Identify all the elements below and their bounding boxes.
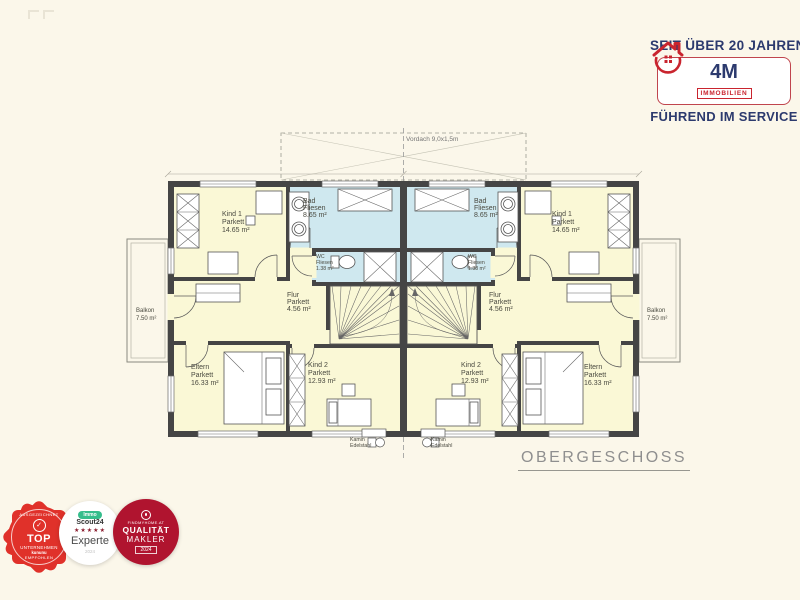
svg-text:Fliesen: Fliesen (474, 205, 497, 212)
right-unit-lines (403, 181, 680, 447)
svg-text:1.38 m²: 1.38 m² (316, 266, 334, 272)
party-wall (400, 181, 407, 437)
badge-arc-top: AUSGEZEICHNET (19, 513, 58, 518)
room-label: Kind 1 (552, 211, 572, 218)
svg-text:Fliesen: Fliesen (303, 205, 326, 212)
room-label: Eltern (584, 364, 602, 371)
svg-text:Parkett: Parkett (287, 299, 309, 306)
room-label: Kind 2 (308, 362, 328, 369)
badge-arc-bottom: EMPFOHLEN (25, 556, 54, 561)
room-label: Flur (287, 292, 300, 299)
room-label: Bad (303, 198, 316, 205)
svg-text:8.65 m²: 8.65 m² (474, 212, 498, 219)
scout24-label: Scout24 (76, 519, 103, 527)
svg-text:Parkett: Parkett (489, 299, 511, 306)
badge-year: 2024 (135, 546, 156, 554)
svg-text:12.93 m²: 12.93 m² (308, 378, 336, 385)
svg-text:Edelstahl: Edelstahl (350, 443, 371, 449)
svg-text:14.65 m²: 14.65 m² (222, 227, 250, 234)
svg-text:Parkett: Parkett (308, 370, 330, 377)
award-badges: AUSGEZEICHNET ✓ TOP UNTERNEHMEN kununu E… (2, 498, 192, 578)
findmyhome-qualitaet-makler-badge: FINDMYHOME.AT QUALITÄT MAKLER 2024 (113, 499, 179, 565)
room-label: Kind 1 (222, 211, 242, 218)
house-icon (650, 38, 686, 74)
logo-subtext: IMMOBILIEN (697, 88, 752, 99)
svg-text:4.56 m²: 4.56 m² (287, 306, 311, 313)
check-icon: ✓ (33, 519, 46, 532)
star-rating-icon: ★★★★★ (74, 528, 106, 535)
room-label: Balkon (647, 308, 665, 314)
listing-floorplan-page: Vordach 9,0x1,5m Kind 1 Parkett 14.65 m²… (0, 0, 800, 600)
logo-text: 4M (697, 62, 752, 82)
floor-title: OBERGESCHOSS (518, 449, 690, 471)
svg-text:7.50 m²: 7.50 m² (136, 316, 156, 322)
svg-text:Parkett: Parkett (191, 372, 213, 379)
immoscout24-experte-badge: Immo Scout24 ★★★★★ Experte 2024 (59, 501, 121, 565)
svg-text:1.38 m²: 1.38 m² (468, 266, 486, 272)
left-unit-lines (127, 181, 404, 447)
svg-text:7.50 m²: 7.50 m² (647, 316, 667, 322)
findmyhome-icon (141, 510, 151, 520)
experte-label: Experte (71, 535, 109, 548)
badge-subtitle: MAKLER (127, 535, 166, 545)
svg-text:Parkett: Parkett (584, 372, 606, 379)
room-label: Kind 2 (461, 362, 481, 369)
room-label: Bad (474, 198, 487, 205)
agency-logo-block: SEIT ÜBER 20 JAHREN 4M IMMOBILIEN FÜHREN… (650, 38, 798, 124)
agency-logo: 4M IMMOBILIEN (657, 57, 791, 105)
svg-text:Edelstahl: Edelstahl (431, 443, 452, 449)
svg-text:16.33 m²: 16.33 m² (584, 380, 612, 387)
room-label: Balkon (136, 308, 154, 314)
badge-title: TOP (27, 533, 51, 546)
svg-text:16.33 m²: 16.33 m² (191, 380, 219, 387)
badge-title: QUALITÄT (123, 525, 170, 535)
room-label: Eltern (191, 364, 209, 371)
svg-text:14.65 m²: 14.65 m² (552, 227, 580, 234)
svg-text:Parkett: Parkett (222, 219, 244, 226)
immoscout-pill: Immo (78, 511, 101, 519)
svg-text:8.65 m²: 8.65 m² (303, 212, 327, 219)
canopy-label: Vordach 9,0x1,5m (406, 136, 458, 143)
svg-text:12.93 m²: 12.93 m² (461, 378, 489, 385)
svg-text:4.56 m²: 4.56 m² (489, 306, 513, 313)
svg-text:Parkett: Parkett (461, 370, 483, 377)
svg-text:Parkett: Parkett (552, 219, 574, 226)
tagline-bottom: FÜHREND IM SERVICE (650, 109, 798, 124)
room-label: Flur (489, 292, 502, 299)
badge-year: 2024 (85, 549, 95, 554)
